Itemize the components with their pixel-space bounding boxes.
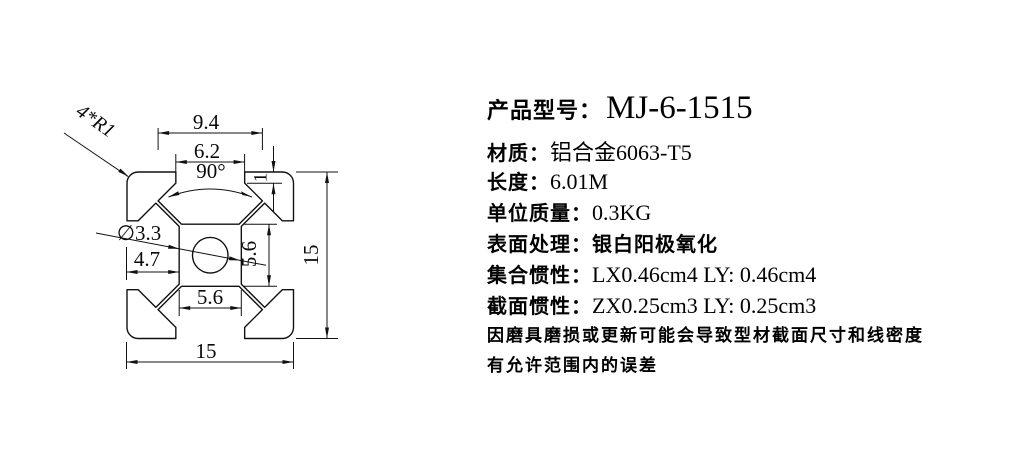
dim-label: 5.6	[197, 285, 223, 309]
dim-overall-height: 15	[296, 172, 338, 339]
spec-row-material: 材质：铝合金6063-T5	[487, 135, 692, 167]
product-title-label: 产品型号：	[487, 93, 602, 125]
angle-arc	[169, 189, 253, 197]
dim-label: 15	[196, 339, 217, 363]
spec-row-unit-weight: 单位质量：0.3KG	[487, 197, 651, 226]
arrowhead	[283, 360, 294, 364]
dim-label: 5.6	[237, 241, 261, 267]
spec-value: ZX0.25cm3 LY: 0.25cm3	[592, 293, 816, 318]
disclaimer-line-1: 因磨具磨损或更新可能会导致型材截面尺寸和线密度	[487, 321, 924, 346]
dim-label: ∅3.3	[117, 221, 162, 245]
dim-label: 15	[299, 245, 323, 266]
datasheet: 9.4 6.2 90° 1	[0, 0, 1032, 460]
dim-slot-angle: 90°	[169, 159, 253, 197]
spec-value: 银白阳极氧化	[592, 234, 718, 256]
disclaimer-line-2: 有允许范围内的误差	[487, 351, 658, 376]
arrowhead	[169, 191, 180, 197]
center-hole	[192, 237, 228, 273]
arrowhead	[158, 131, 169, 135]
dim-label: 90°	[196, 159, 225, 183]
spec-label: 单位质量：	[487, 203, 592, 225]
dim-label: 4.7	[134, 247, 160, 271]
arrowhead	[267, 224, 271, 235]
arrowhead	[267, 275, 271, 286]
arrowhead	[179, 306, 190, 310]
arrowhead	[272, 161, 276, 172]
arrowhead	[230, 306, 241, 310]
product-title-row: 产品型号： MJ-6-1515	[487, 90, 753, 127]
arrowhead	[251, 131, 262, 135]
spec-value: LX0.46cm4 LY: 0.46cm4	[592, 262, 816, 287]
spec-row-inertia: 集合惯性：LX0.46cm4 LY: 0.46cm4	[487, 259, 816, 288]
arrowhead	[272, 183, 276, 194]
arrowhead	[168, 245, 179, 249]
spec-value: 铝合金6063-T5	[550, 140, 692, 165]
spec-row-section-modulus: 截面惯性：ZX0.25cm3 LY: 0.25cm3	[487, 290, 816, 319]
arrowhead	[118, 169, 128, 177]
dim-core-width: 5.6	[179, 285, 241, 316]
spec-label: 材质：	[487, 143, 550, 165]
dim-label: 4*R1	[72, 100, 119, 142]
arrowhead	[176, 160, 187, 164]
dim-core-height: 5.6	[237, 224, 277, 286]
dim-label: 9.4	[193, 110, 220, 134]
arrowhead	[127, 360, 138, 364]
spec-value: 0.3KG	[592, 200, 651, 225]
arrowhead	[168, 270, 179, 274]
dim-label: 1	[251, 173, 272, 183]
spec-value: 6.01M	[550, 169, 608, 194]
arrowhead	[234, 160, 245, 164]
spec-row-length: 长度：6.01M	[487, 166, 608, 195]
dim-edge-to-core: 4.7	[127, 247, 180, 280]
profile-drawing: 9.4 6.2 90° 1	[40, 85, 350, 385]
spec-label: 集合惯性：	[487, 265, 592, 287]
spec-label: 表面处理：	[487, 234, 592, 256]
arrowhead	[241, 191, 252, 197]
dim-lip-thickness: 1	[247, 146, 282, 212]
leader-line	[64, 133, 128, 177]
spec-row-surface: 表面处理：银白阳极氧化	[487, 228, 718, 257]
spec-label: 截面惯性：	[487, 296, 592, 318]
dim-overall-width: 15	[127, 339, 294, 369]
product-title-value: MJ-6-1515	[606, 90, 753, 127]
label-corner-radius: 4*R1	[64, 100, 129, 177]
arrowhead	[325, 328, 329, 339]
arrowhead	[325, 172, 329, 183]
spec-label: 长度：	[487, 172, 550, 194]
